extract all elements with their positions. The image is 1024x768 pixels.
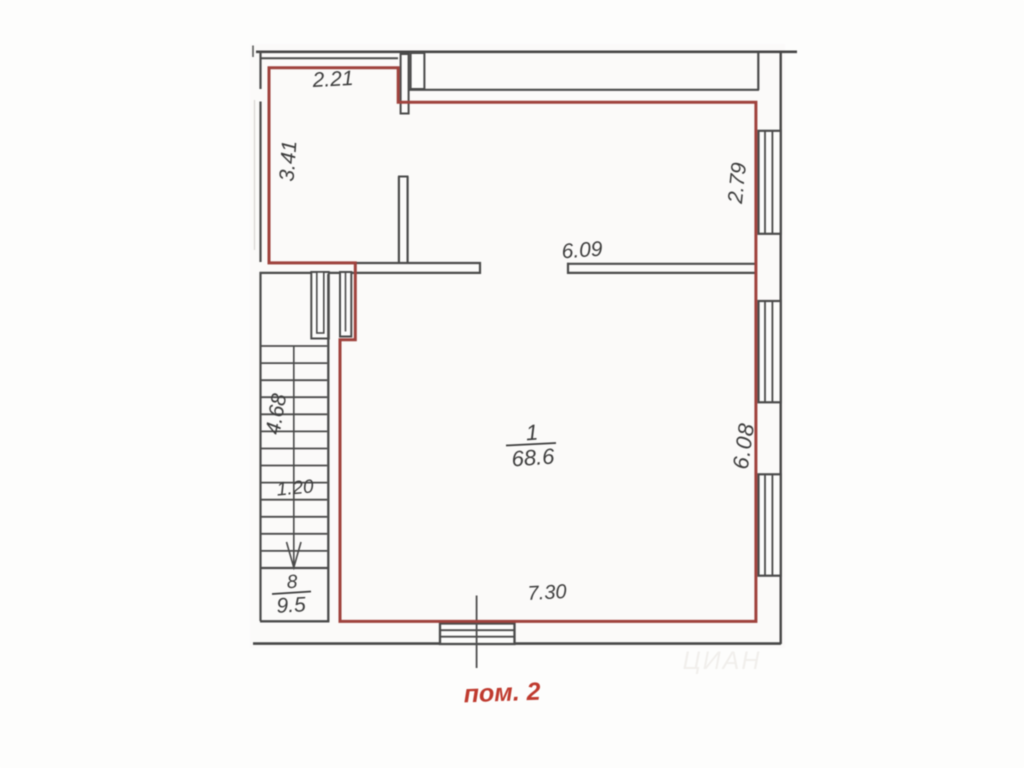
- svg-text:7.30: 7.30: [527, 581, 567, 605]
- svg-text:2.21: 2.21: [311, 67, 354, 92]
- svg-text:1: 1: [525, 420, 539, 446]
- svg-text:68.6: 68.6: [511, 443, 556, 471]
- svg-text:1.20: 1.20: [276, 476, 315, 500]
- svg-text:3.41: 3.41: [276, 140, 302, 182]
- svg-text:ЦИАН: ЦИАН: [683, 647, 762, 675]
- svg-text:2.79: 2.79: [724, 161, 751, 205]
- svg-text:9.5: 9.5: [276, 593, 307, 618]
- svg-text:6.09: 6.09: [561, 238, 604, 264]
- svg-text:пом. 2: пом. 2: [463, 678, 541, 709]
- svg-text:8: 8: [286, 572, 298, 594]
